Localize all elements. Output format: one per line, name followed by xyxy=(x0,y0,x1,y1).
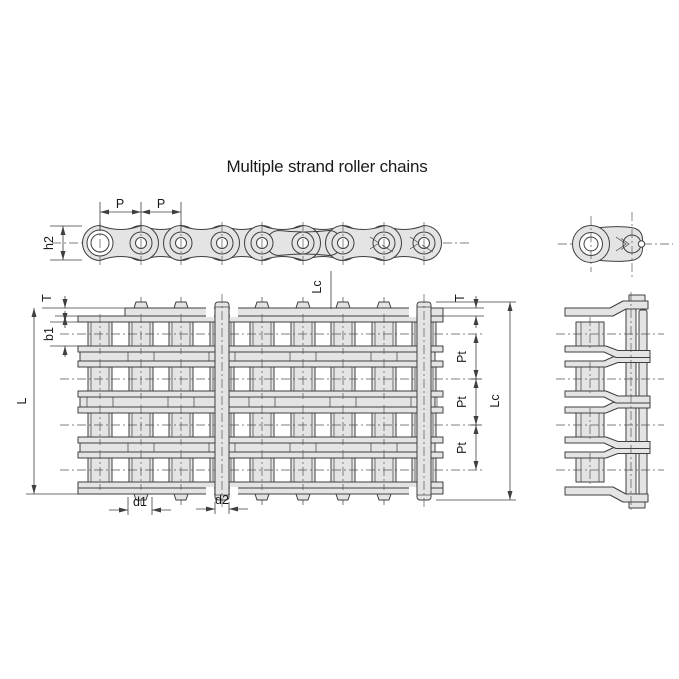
dim-label-b1: b1 xyxy=(42,327,56,341)
dim-label-d1: d1 xyxy=(133,495,147,509)
dimension-arrow xyxy=(32,308,37,317)
dim-label-pitch-1: P xyxy=(116,197,124,211)
dimension-arrow xyxy=(474,425,479,434)
dimension-arrow xyxy=(63,313,68,322)
cotter-head xyxy=(134,302,148,308)
dimension-arrow xyxy=(474,416,479,425)
dimension-arrow xyxy=(61,226,66,235)
plate-gap xyxy=(230,307,238,317)
inner-plate-strip xyxy=(78,437,443,443)
dimension-arrow xyxy=(508,491,513,500)
pin-cap xyxy=(629,295,645,301)
dimension-arrow xyxy=(63,346,68,355)
plate-gap xyxy=(409,487,417,495)
pin-cap xyxy=(629,502,645,508)
dimension-arrow xyxy=(474,316,479,325)
dimension-arrow xyxy=(474,461,479,470)
single-strand-side-view xyxy=(52,222,472,266)
multi-strand-side-view xyxy=(556,292,664,512)
link-plate xyxy=(565,437,650,449)
dimension-arrow xyxy=(119,508,128,513)
dimension-arrow xyxy=(474,370,479,379)
link-plate xyxy=(565,346,650,358)
dim-label-d2: d2 xyxy=(215,493,229,507)
plate-gap xyxy=(206,307,214,317)
cotter-head xyxy=(336,494,350,500)
page-title: Multiple strand roller chains xyxy=(226,157,427,176)
dimension-arrow xyxy=(141,210,150,215)
dimension-arrow xyxy=(61,251,66,260)
inner-plate-strip xyxy=(78,407,443,413)
dim-label-pt-3: Pt xyxy=(455,442,469,454)
cotter-end xyxy=(638,241,644,247)
inner-plate-strip xyxy=(78,346,443,352)
outer-plate-row xyxy=(80,443,435,452)
cotter-head xyxy=(296,302,310,308)
plate-gap xyxy=(230,487,238,495)
inner-plate-strip xyxy=(78,316,443,322)
plate-gap xyxy=(206,487,214,495)
cotter-head xyxy=(377,494,391,500)
dimension-arrow xyxy=(508,302,513,311)
outer-plate-row-bottom xyxy=(78,488,443,494)
cotter-head xyxy=(296,494,310,500)
dim-label-t-left: T xyxy=(40,294,54,302)
dimension-arrow xyxy=(132,210,141,215)
dim-label-l: L xyxy=(15,397,29,404)
dimension-arrow xyxy=(152,508,161,513)
dimension-arrow xyxy=(100,210,109,215)
dimension-arrow xyxy=(206,507,215,512)
cotter-head xyxy=(377,302,391,308)
inner-plate-strip xyxy=(78,361,443,367)
dimension-arrow xyxy=(32,485,37,494)
dim-label-lc-right: Lc xyxy=(488,394,502,407)
cotter-head xyxy=(174,302,188,308)
dim-label-t-right: T xyxy=(453,294,467,302)
inner-plate-strip xyxy=(78,452,443,458)
dimension-arrow xyxy=(172,210,181,215)
multi-strand-plan-view xyxy=(60,294,482,510)
single-strand-end-view xyxy=(558,212,673,277)
inner-plate-strip xyxy=(78,391,443,397)
cotter-head xyxy=(174,494,188,500)
cotter-head xyxy=(255,494,269,500)
link-plate xyxy=(565,391,650,403)
dimension-arrow xyxy=(474,334,479,343)
drawing-page: Multiple strand roller chains P P h2 Lc … xyxy=(0,0,679,679)
dimension-arrow xyxy=(229,507,238,512)
outer-plate-row-top xyxy=(125,308,443,316)
dim-label-pt-1: Pt xyxy=(455,351,469,363)
plate-gap xyxy=(409,307,417,317)
dim-label-plate-height: h2 xyxy=(42,236,56,250)
dimension-arrow xyxy=(474,299,479,308)
dim-label-lc-top: Lc xyxy=(310,280,324,293)
technical-drawing: Multiple strand roller chains P P h2 Lc … xyxy=(0,0,679,679)
inner-plate-strip xyxy=(78,482,443,488)
dim-label-pt-2: Pt xyxy=(455,396,469,408)
dim-label-pitch-2: P xyxy=(157,197,165,211)
dimension-arrow xyxy=(474,379,479,388)
cotter-head xyxy=(336,302,350,308)
dimension-arrow xyxy=(63,299,68,308)
cotter-head xyxy=(255,302,269,308)
outer-plate-row xyxy=(80,397,435,407)
outer-plate-row xyxy=(80,352,435,361)
